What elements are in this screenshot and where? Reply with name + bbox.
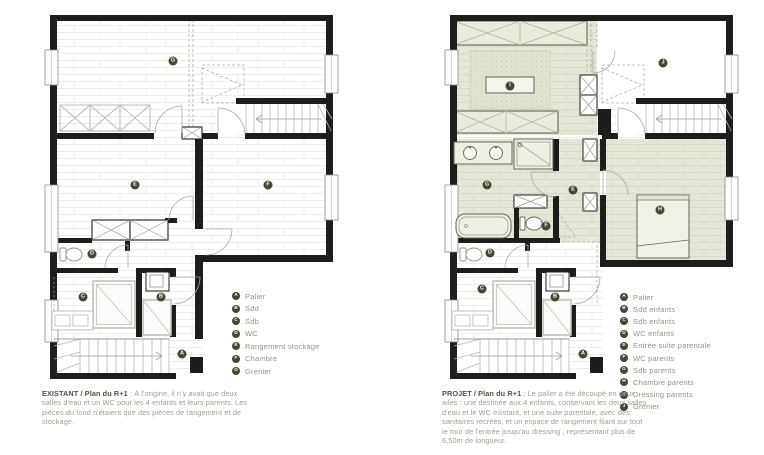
wc-parents-toilet [520,217,542,230]
panel-existant: GEFDCBA APalierBSddCSdbDWCERangement sto… [40,0,345,455]
legend-item: BSdd enfants [620,303,711,315]
legend-item: ERangement stockage [232,340,319,353]
legend-label: Palier [245,292,265,301]
legend-item: DWC enfants [620,328,711,340]
legend-label: Sdb enfants [633,317,675,326]
caption-projet: PROJET / Plan du R+1 : Le palier a été d… [442,389,648,445]
legend-item: HChambre parents [620,376,711,388]
legend-item: APalier [232,290,319,303]
room-letter-badge: C [620,317,628,325]
legend-item: EEntrée suite parentale [620,340,711,352]
room-letter-badge: G [620,366,628,374]
room-letter-badge: F [620,354,628,362]
legend-label: Sdb parents [633,366,676,375]
legend-item: GGrenier [232,365,319,378]
shower-sdb [493,281,535,328]
vanity-sdb [52,311,93,330]
legend-label: Grenier [245,367,271,376]
shower-sdd [543,300,571,335]
closet-row [92,220,168,240]
room-letter-badge: B [232,305,240,313]
legend-label: WC parents [633,354,675,363]
room-letter-badge: C [232,317,240,325]
shower-sdb [93,281,135,328]
legend-label: Sdb [245,317,259,326]
legend-item: DWC [232,328,319,341]
wc-toilet [460,248,482,261]
room-letter-badge: B [620,305,628,313]
duct [182,127,202,139]
room-letter-badge: A [620,293,628,301]
caption-existant: EXISTANT / Plan du R+1 : À l'origine, il… [42,389,248,427]
room-letter-badge: D [620,330,628,338]
sink-sdd [546,272,569,291]
sink-sdd [146,272,169,291]
legend-item: GSdb parents [620,364,711,376]
legend-label: Sdd enfants [633,305,675,314]
vanity-sdb [452,311,493,330]
legend-label: Sdd [245,304,259,313]
room-letter-badge: E [620,342,628,350]
legend-item: BSdd [232,303,319,316]
room-letter-badge: A [232,292,240,300]
legend-item: CSdb [232,315,319,328]
legend-label: Rangement stockage [245,342,319,351]
legend-label: Chambre parents [633,378,694,387]
page: GEFDCBA APalierBSddCSdbDWCERangement sto… [0,0,764,455]
legend-label: WC enfants [633,329,674,338]
room-letter-badge: H [620,378,628,386]
double-vanity [454,142,512,164]
dressing-island [486,77,534,93]
legend-existant: APalierBSddCSdbDWCERangement stockageFCh… [232,290,319,378]
panel-projet: IJGEFHDCBA APalierBSdd enfantsCSdb enfan… [440,0,745,455]
room-letter-badge: E [232,342,240,350]
legend-label: WC [245,329,258,338]
wc-toilet [60,248,82,261]
legend-item: FWC parents [620,352,711,364]
legend-item: FChambre [232,353,319,366]
legend-label: Palier [633,293,653,302]
room-letter-badge: D [232,330,240,338]
bathtub [456,214,511,238]
legend-item: APalier [620,291,711,303]
legend-label: Chambre [245,354,277,363]
room-letter-badge: G [232,367,240,375]
caption-title: EXISTANT / Plan du R+1 [42,389,128,398]
room-letter-badge: F [232,355,240,363]
shower-parents [514,139,553,169]
legend-item: CSdb enfants [620,315,711,327]
shower-sdd [143,300,171,335]
bed [637,195,689,258]
caption-title: PROJET / Plan du R+1 [442,389,521,398]
legend-label: Entrée suite parentale [633,341,711,350]
closet-column [580,75,597,115]
